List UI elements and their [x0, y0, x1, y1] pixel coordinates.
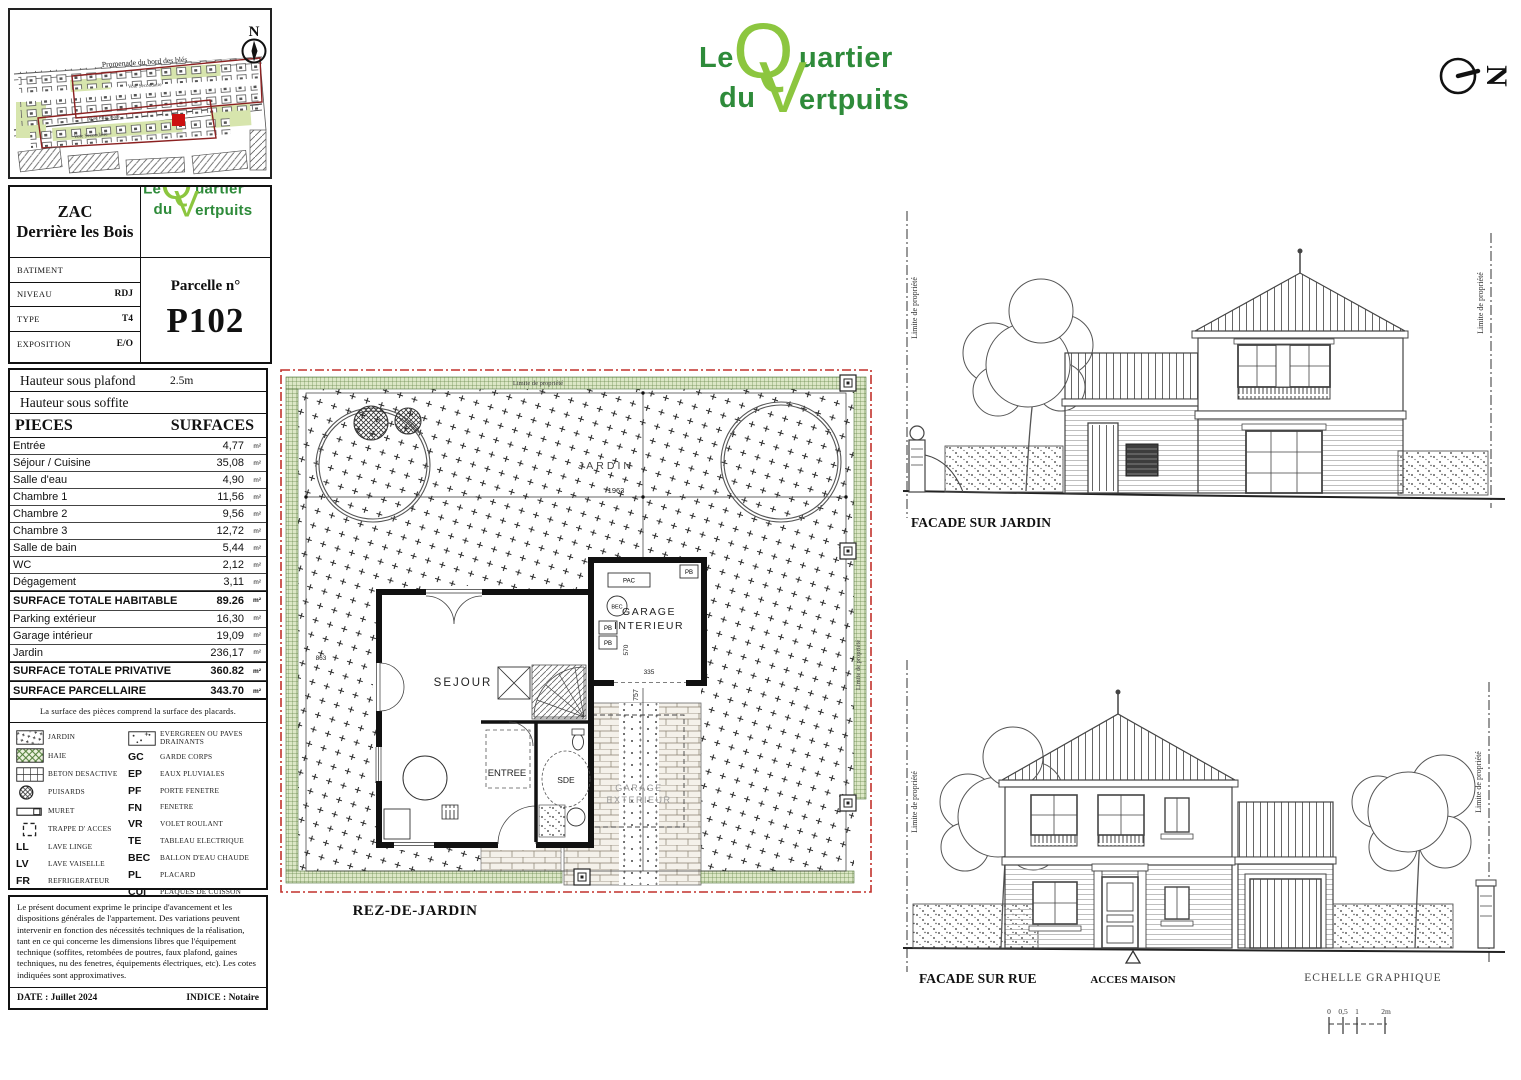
legend-label: PLACARD: [160, 871, 195, 879]
garage-wing: [1062, 353, 1201, 493]
legend: La surface des pièces comprend la surfac…: [8, 698, 268, 890]
field-value: RDJ: [115, 289, 133, 299]
floor-plan: 1963 757 863 Limite de propriété Limite …: [276, 365, 876, 897]
svg-text:0,5: 0,5: [1338, 1007, 1348, 1016]
room-surface: 12,72: [192, 525, 244, 537]
french-door: [1246, 431, 1322, 493]
housing-lots: [18, 57, 259, 148]
surface-unit: m²: [244, 688, 263, 695]
surface-unit: m²: [244, 632, 263, 639]
surface-unit: m²: [244, 668, 263, 675]
legend-label: BALLON D'EAU CHAUDE: [160, 854, 249, 862]
echelle-label: ECHELLE GRAPHIQUE: [1304, 972, 1441, 984]
table-header: PIECES SURFACES: [10, 414, 266, 438]
surface-unit: m²: [244, 597, 263, 604]
surface-unit: m²: [244, 443, 263, 450]
svg-text:N: N: [1480, 65, 1513, 87]
trappe-symbol: [16, 822, 48, 837]
legend-abbr: BEC: [128, 852, 160, 864]
hedge: [945, 446, 1063, 492]
legend-abbr: LV: [16, 858, 48, 870]
puisard-symbol: [16, 785, 48, 800]
surface-row: Parking extérieur16,30m²: [10, 611, 266, 628]
logo-du: du: [719, 84, 755, 113]
room-surface: 343.70: [192, 685, 244, 697]
facade-rue-title: FACADE SUR RUE: [919, 971, 1037, 986]
surface-row: SURFACE TOTALE PRIVATIVE360.82m²: [10, 662, 266, 682]
room-name: Dégagement: [13, 576, 192, 588]
room-name: Chambre 2: [13, 508, 192, 520]
legend-abbr: FR: [16, 875, 48, 887]
room-surface: 9,56: [192, 508, 244, 520]
legend-label: PUISARDS: [48, 788, 85, 796]
legend-label: LAVE VAISELLE: [48, 860, 105, 868]
garage-door: [1250, 879, 1321, 948]
field-label: BATIMENT: [17, 265, 63, 275]
facade-jardin-title: FACADE SUR JARDIN: [911, 515, 1051, 530]
roof: [1195, 273, 1405, 331]
dim-vertical: 757: [633, 689, 640, 701]
parcel-highlight: [172, 114, 185, 126]
legend-label: FENETRE: [160, 803, 193, 811]
site-map: N Promenade du bord des blés Voie Second…: [8, 8, 272, 179]
svg-text:0: 0: [1327, 1007, 1331, 1016]
project-name: ZAC Derrière les Bois: [10, 187, 140, 258]
svg-text:GARAGE: GARAGE: [622, 606, 676, 618]
legend-item: BECBALLON D'EAU CHAUDE: [128, 852, 262, 866]
surface-unit: m²: [244, 579, 263, 586]
haie-symbol: [16, 748, 48, 763]
legend-label: BETON DESACTIVE: [48, 770, 118, 778]
svg-text:EXTERIEUR: EXTERIEUR: [606, 795, 671, 805]
room-name: Garage intérieur: [13, 630, 192, 642]
title-block-row: EXPOSITIONE/O: [10, 332, 140, 357]
field-value: E/O: [117, 339, 133, 349]
svg-text:ENTREE: ENTREE: [488, 768, 527, 779]
room-surface: 11,56: [192, 491, 244, 503]
room-surface: 19,09: [192, 630, 244, 642]
svg-text:1: 1: [1355, 1007, 1359, 1016]
bec-label: BEC: [611, 605, 622, 611]
legend-item: MURET: [16, 804, 128, 819]
field-label: NIVEAU: [17, 289, 52, 299]
date-label: DATE : Juillet 2024: [17, 993, 97, 1003]
title-block-row: NIVEAURDJ: [10, 283, 140, 308]
svg-text:2m: 2m: [1381, 1007, 1391, 1016]
legend-label: HAIE: [48, 752, 66, 760]
legend-abbr: TE: [128, 835, 160, 847]
main-house: [1192, 249, 1408, 493]
title-block-row: TYPET4: [10, 307, 140, 332]
hedge: [1398, 451, 1488, 495]
legend-label: REFRIGERATEUR: [48, 877, 109, 885]
acces-maison-label: ACCES MAISON: [1090, 974, 1175, 986]
surface-unit: m²: [244, 494, 263, 501]
room-name: Chambre 3: [13, 525, 192, 537]
field-label: TYPE: [17, 314, 40, 324]
legend-item: TETABLEAU ELECTRIQUE: [128, 835, 262, 849]
legend-abbr: LL: [16, 841, 48, 853]
legend-abbr: PL: [128, 869, 160, 881]
svg-text:335: 335: [644, 669, 655, 676]
room-name: SURFACE PARCELLAIRE: [13, 685, 192, 697]
legend-item: LLLAVE LINGE: [16, 840, 128, 854]
main-house: [999, 690, 1238, 948]
surface-row: Salle d'eau4,90m²: [10, 472, 266, 489]
surface-row: WC2,12m²: [10, 557, 266, 574]
plan-caption: REZ-DE-JARDIN: [330, 903, 500, 920]
svg-text:SDE: SDE: [557, 775, 575, 785]
room-surface: 35,08: [192, 457, 244, 469]
room-name: Salle de bain: [13, 542, 192, 554]
legend-label: GARDE CORPS: [160, 753, 212, 761]
legend-label: LAVE LINGE: [48, 843, 92, 851]
room-surface: 360.82: [192, 665, 244, 677]
surface-unit: m²: [244, 460, 263, 467]
svg-text:GARAGE: GARAGE: [615, 783, 663, 793]
legend-label: MURET: [48, 807, 75, 815]
dim-left: 863: [316, 655, 327, 662]
surface-unit: m²: [244, 649, 263, 656]
legend-item: FRREFRIGERATEUR: [16, 874, 128, 888]
room-name: Salle d'eau: [13, 474, 192, 486]
room-name: SURFACE TOTALE HABITABLE: [13, 595, 192, 607]
legend-abbr: EP: [128, 768, 160, 780]
svg-text:PB: PB: [685, 570, 693, 576]
svg-text:N: N: [249, 24, 260, 40]
surface-row: Chambre 29,56m²: [10, 506, 266, 523]
access-triangle-icon: [1126, 951, 1140, 963]
legend-item: PLPLACARD: [128, 868, 262, 882]
room-surface: 5,44: [192, 542, 244, 554]
room-name: Jardin: [13, 647, 192, 659]
north-arrow-icon: N: [1430, 46, 1520, 106]
legend-abbr: GC: [128, 751, 160, 763]
legend-abbr: VR: [128, 818, 160, 830]
hauteur-soffite-row: Hauteur sous soffite: [10, 392, 266, 414]
room-name: WC: [13, 559, 192, 571]
muret-symbol: [16, 804, 48, 819]
logo-uartier: uartier: [799, 44, 893, 73]
pac-label: PAC: [623, 579, 636, 585]
svg-text:PB: PB: [604, 626, 612, 632]
balcony-rail: [1238, 387, 1330, 399]
surface-unit: m²: [244, 511, 263, 518]
legend-label: EVERGREEN OU PAVES DRAINANTS: [160, 730, 262, 747]
legend-label: TRAPPE D' ACCES: [48, 825, 112, 833]
room-surface: 4,90: [192, 474, 244, 486]
limite-label-right: Limite de propriété: [855, 640, 862, 690]
surface-unit: m²: [244, 562, 263, 569]
surface-unit: m²: [244, 477, 263, 484]
svg-text:SEJOUR: SEJOUR: [434, 677, 493, 689]
room-surface: 16,30: [192, 613, 244, 625]
room-name: Entrée: [13, 440, 192, 452]
hedge: [1333, 904, 1453, 948]
surface-unit: m²: [244, 545, 263, 552]
logo: Le Q uartier du V ertpuits: [695, 26, 935, 126]
house-sejour: SEJOUR ENTREE SDE: [373, 586, 591, 850]
evergreen-symbol: [128, 731, 160, 746]
entry-door: [1092, 864, 1148, 948]
garage-interieur: PAC BEC PB PB PB GARAGE INTERIEUR 335 57…: [591, 560, 704, 688]
room-surface: 89.26: [192, 595, 244, 607]
room-name: SURFACE TOTALE PRIVATIVE: [13, 665, 192, 677]
legend-item: HAIE: [16, 748, 128, 763]
garage: [1235, 802, 1336, 948]
surface-row: Jardin236,17m²: [10, 645, 266, 662]
svg-text:PB: PB: [604, 641, 612, 647]
room-surface: 236,17: [192, 647, 244, 659]
surface-row: Chambre 312,72m²: [10, 523, 266, 540]
legend-note: La surface des pièces comprend la surfac…: [10, 700, 266, 723]
surfaces-table: Hauteur sous plafond 2.5m Hauteur sous s…: [8, 368, 268, 703]
legend-label: VOLET ROULANT: [160, 820, 223, 828]
logo-ertpuits: ertpuits: [799, 86, 909, 115]
room-surface: 2,12: [192, 559, 244, 571]
legend-label: EAUX PLUVIALES: [160, 770, 225, 778]
room-name: Parking extérieur: [13, 613, 192, 625]
limite-right: Limite de propriété: [1476, 272, 1485, 334]
disclaimer: Le présent document exprime le principe …: [8, 895, 268, 1010]
gate-post: [1476, 880, 1496, 948]
surface-unit: m²: [244, 615, 263, 622]
legend-label: TABLEAU ELECTRIQUE: [160, 837, 244, 845]
beton-symbol: [16, 767, 48, 782]
room-name: Chambre 1: [13, 491, 192, 503]
plan-sheet: N Promenade du bord des blés Voie Second…: [0, 0, 1521, 1080]
title-block-logo: Le Q uartier du V ertpuits: [141, 187, 270, 258]
hauteur-plafond-row: Hauteur sous plafond 2.5m: [10, 370, 266, 392]
legend-abbr: PF: [128, 785, 160, 797]
parcel-number: P102: [167, 301, 245, 341]
title-block: ZAC Derrière les Bois BATIMENTNIVEAURDJT…: [8, 185, 272, 364]
surface-row: Séjour / Cuisine35,08m²: [10, 455, 266, 472]
legend-label: JARDIN: [48, 733, 75, 741]
legend-item: BETON DESACTIVE: [16, 767, 128, 782]
jardin-symbol: [16, 730, 48, 745]
logo-le: Le: [699, 44, 734, 73]
surface-row: SURFACE TOTALE HABITABLE89.26m²: [10, 591, 266, 611]
room-name: Séjour / Cuisine: [13, 457, 192, 469]
jardin-label: JARDIN: [578, 460, 634, 472]
legend-item: EPEAUX PLUVIALES: [128, 767, 262, 781]
legend-item: PUISARDS: [16, 785, 128, 800]
legend-item: EVERGREEN OU PAVES DRAINANTS: [128, 730, 262, 747]
surface-row: Garage intérieur19,09m²: [10, 628, 266, 645]
scale-bar: 0 0,5 1 2m: [1327, 1007, 1391, 1034]
room-surface: 3,11: [192, 576, 244, 588]
legend-item: PFPORTE FENETRE: [128, 784, 262, 798]
svg-text:INTERIEUR: INTERIEUR: [614, 620, 684, 632]
surface-row: Entrée4,77m²: [10, 438, 266, 455]
legend-item: FNFENETRE: [128, 801, 262, 815]
legend-item: GCGARDE CORPS: [128, 750, 262, 764]
surface-unit: m²: [244, 528, 263, 535]
limite-left: Limite de propriété: [910, 277, 919, 339]
dim-top: 1963: [608, 486, 625, 495]
surface-row: Dégagement3,11m²: [10, 574, 266, 591]
legend-item: JARDIN: [16, 730, 128, 745]
facade-rue-drawing: Limite de propriété Limite de propriété: [893, 652, 1515, 1077]
legend-item: TRAPPE D' ACCES: [16, 822, 128, 837]
field-label: EXPOSITION: [17, 339, 71, 349]
room-surface: 4,77: [192, 440, 244, 452]
surface-row: Chambre 111,56m²: [10, 489, 266, 506]
legend-abbr: FN: [128, 802, 160, 814]
limite-left: Limite de propriété: [910, 771, 919, 833]
surface-row: Salle de bain5,44m²: [10, 540, 266, 557]
disclaimer-text: Le présent document exprime le principe …: [10, 897, 266, 987]
legend-item: LVLAVE VAISELLE: [16, 857, 128, 871]
svg-text:570: 570: [623, 644, 630, 655]
title-block-row: BATIMENT: [10, 258, 140, 283]
limite-right: Limite de propriété: [1474, 751, 1483, 813]
parcel-label: Parcelle n°: [171, 278, 240, 295]
legend-item: VRVOLET ROULANT: [128, 818, 262, 832]
facade-jardin-drawing: Limite de propriété Limite de propriété: [893, 203, 1515, 543]
indice-label: INDICE : Notaire: [186, 993, 259, 1003]
limite-label-top: Limite de propriété: [513, 380, 563, 387]
legend-label: PORTE FENETRE: [160, 787, 219, 795]
field-value: T4: [122, 314, 133, 324]
